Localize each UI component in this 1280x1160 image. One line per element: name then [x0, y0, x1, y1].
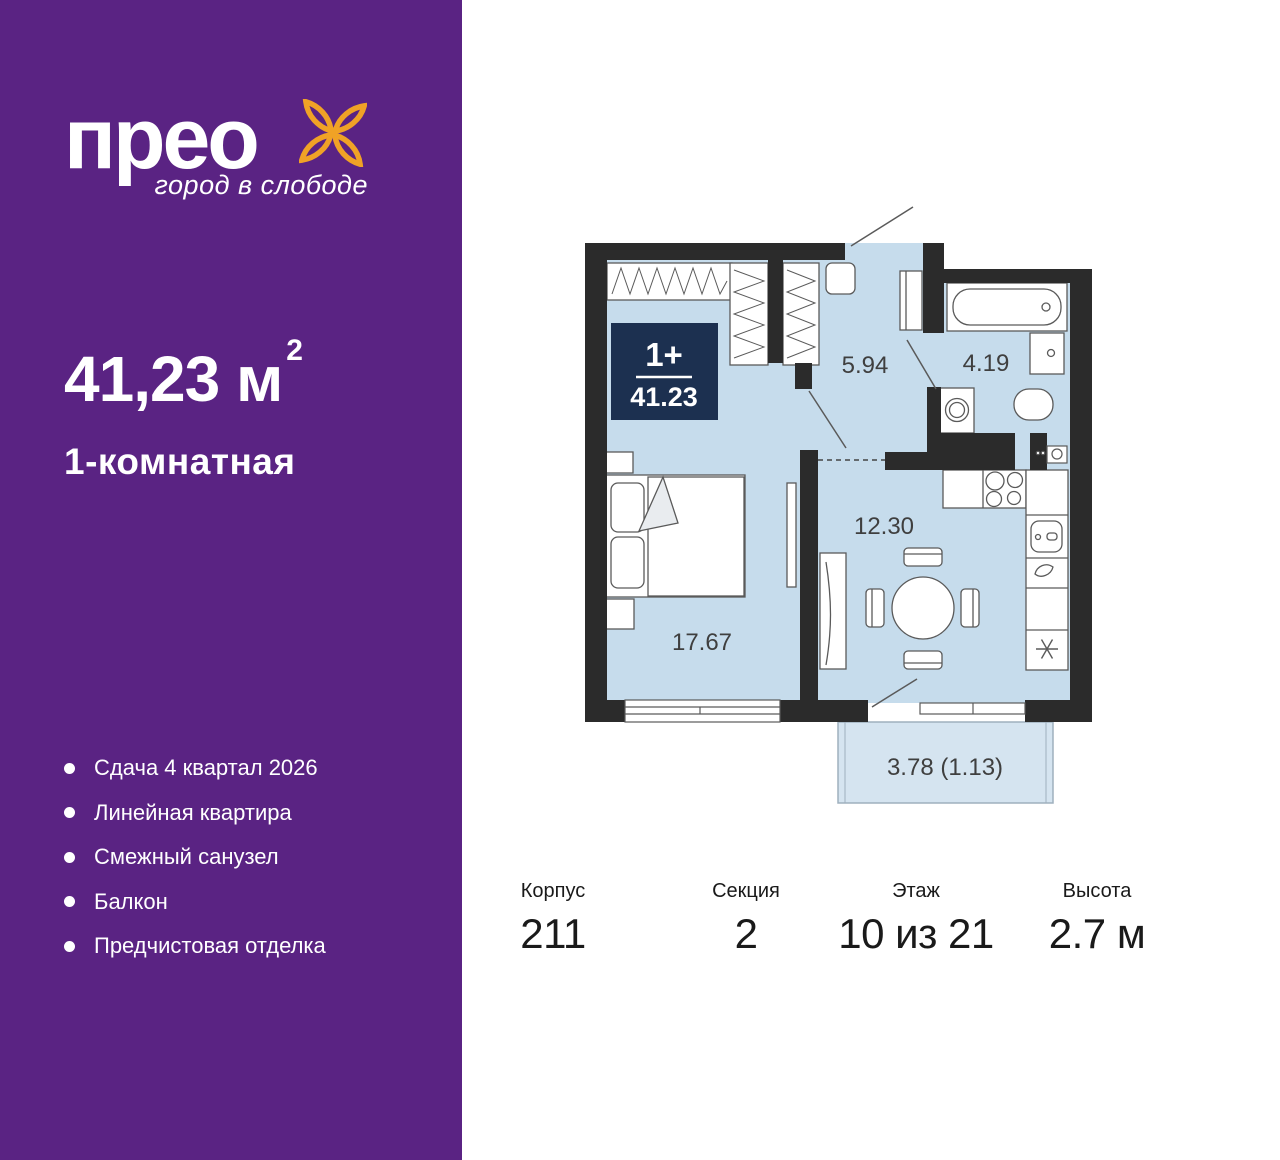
balcony-window — [920, 703, 1025, 714]
detail-section: Секция 2 — [712, 880, 780, 958]
bedroom-door-leaf — [787, 483, 796, 587]
badge-area: 41.23 — [630, 382, 698, 412]
bullet-icon — [64, 941, 75, 952]
bullet-icon — [64, 852, 75, 863]
apartment-type-title: 1-комнатная — [64, 441, 295, 483]
entrance-door-swing — [851, 207, 913, 246]
detail-building: Корпус 211 — [520, 880, 585, 958]
bathtub — [947, 283, 1067, 331]
detail-floor-label: Этаж — [838, 880, 994, 903]
detail-height-label: Высота — [1049, 880, 1145, 903]
feature-list: Сдача 4 квартал 2026 Линейная квартира С… — [64, 746, 326, 969]
feature-item: Предчистовая отделка — [64, 924, 326, 969]
detail-building-label: Корпус — [520, 880, 585, 903]
brand-flower-icon — [299, 99, 367, 167]
bedroom-window — [625, 700, 780, 722]
detail-floor-value: 10 из 21 — [838, 910, 994, 958]
feature-item: Смежный санузел — [64, 835, 326, 880]
room-area-label-kitchen-living: 12.30 — [854, 513, 914, 540]
feature-item: Линейная квартира — [64, 791, 326, 836]
area-superscript: 2 — [286, 334, 302, 367]
room-area-label-hallway: 5.94 — [842, 352, 889, 379]
detail-section-label: Секция — [712, 880, 780, 903]
feature-item: Балкон — [64, 880, 326, 925]
detail-building-value: 211 — [520, 910, 585, 958]
hallway-cabinet — [900, 271, 922, 330]
feature-item: Сдача 4 квартал 2026 — [64, 746, 326, 791]
stove-burner — [986, 472, 1004, 490]
floor-plan: 5.94 4.19 12.30 17.67 3.78 (1.13) 1+ 41.… — [580, 200, 1100, 820]
washing-machine — [940, 388, 974, 433]
bed — [603, 475, 745, 597]
bullet-icon — [64, 763, 75, 774]
brand-tagline: город в слободе — [64, 170, 368, 201]
detail-floor: Этаж 10 из 21 — [838, 880, 994, 958]
apartment-area: 41,23 м2 — [64, 342, 298, 416]
detail-section-value: 2 — [712, 910, 780, 958]
tv-console — [820, 553, 846, 669]
bullet-icon — [64, 896, 75, 907]
detail-height: Высота 2.7 м — [1049, 880, 1145, 958]
entry-panel — [826, 263, 855, 294]
room-area-label-balcony: 3.78 (1.13) — [887, 754, 1003, 781]
room-area-label-bathroom: 4.19 — [963, 350, 1010, 377]
detail-height-value: 2.7 м — [1049, 910, 1145, 958]
bathroom-sink — [1030, 333, 1064, 374]
bullet-icon — [64, 807, 75, 818]
toilet — [1014, 389, 1053, 420]
badge-rooms-type: 1+ — [645, 336, 683, 373]
room-area-label-bedroom: 17.67 — [672, 629, 732, 656]
plan-badge: 1+ 41.23 — [611, 323, 718, 420]
